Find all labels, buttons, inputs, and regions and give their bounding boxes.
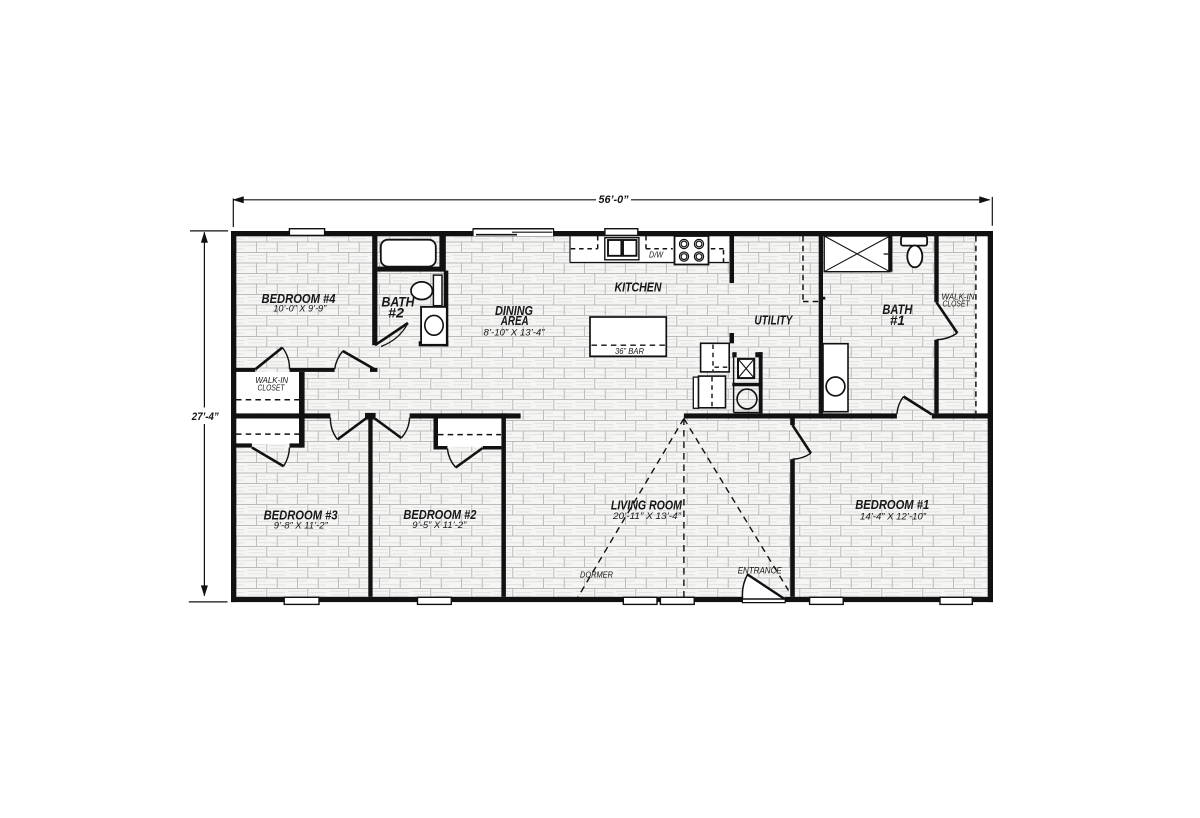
- svg-text:#1: #1: [890, 313, 905, 328]
- svg-text:10’-0” X 9’-9”: 10’-0” X 9’-9”: [273, 304, 327, 314]
- svg-text:DORMER: DORMER: [580, 569, 613, 579]
- svg-text:56’-0”: 56’-0”: [599, 194, 629, 206]
- svg-text:LIVING ROOM: LIVING ROOM: [611, 497, 683, 512]
- svg-text:ENTRANCE: ENTRANCE: [738, 565, 783, 576]
- svg-text:CLOSET: CLOSET: [258, 383, 286, 392]
- svg-text:KITCHEN: KITCHEN: [615, 280, 662, 295]
- svg-text:9’-8” X 11’-2”: 9’-8” X 11’-2”: [274, 521, 329, 532]
- svg-text:20’-11” X 13’-4”: 20’-11” X 13’-4”: [612, 511, 682, 522]
- svg-text:AREA: AREA: [500, 314, 529, 328]
- svg-text:8’-10” X 13’-4”: 8’-10” X 13’-4”: [484, 328, 546, 338]
- svg-text:UTILITY: UTILITY: [754, 312, 793, 327]
- svg-text:D/W: D/W: [649, 251, 664, 260]
- svg-text:14’-4” X 12’-10”: 14’-4” X 12’-10”: [860, 512, 927, 523]
- svg-text:BEDROOM #1: BEDROOM #1: [855, 497, 929, 512]
- svg-text:#2: #2: [388, 305, 405, 320]
- svg-text:CLOSET: CLOSET: [943, 300, 971, 309]
- svg-text:27’-4”: 27’-4”: [191, 411, 219, 423]
- svg-text:36” BAR: 36” BAR: [615, 347, 644, 356]
- svg-text:9’-5” X 11’-2”: 9’-5” X 11’-2”: [412, 520, 467, 531]
